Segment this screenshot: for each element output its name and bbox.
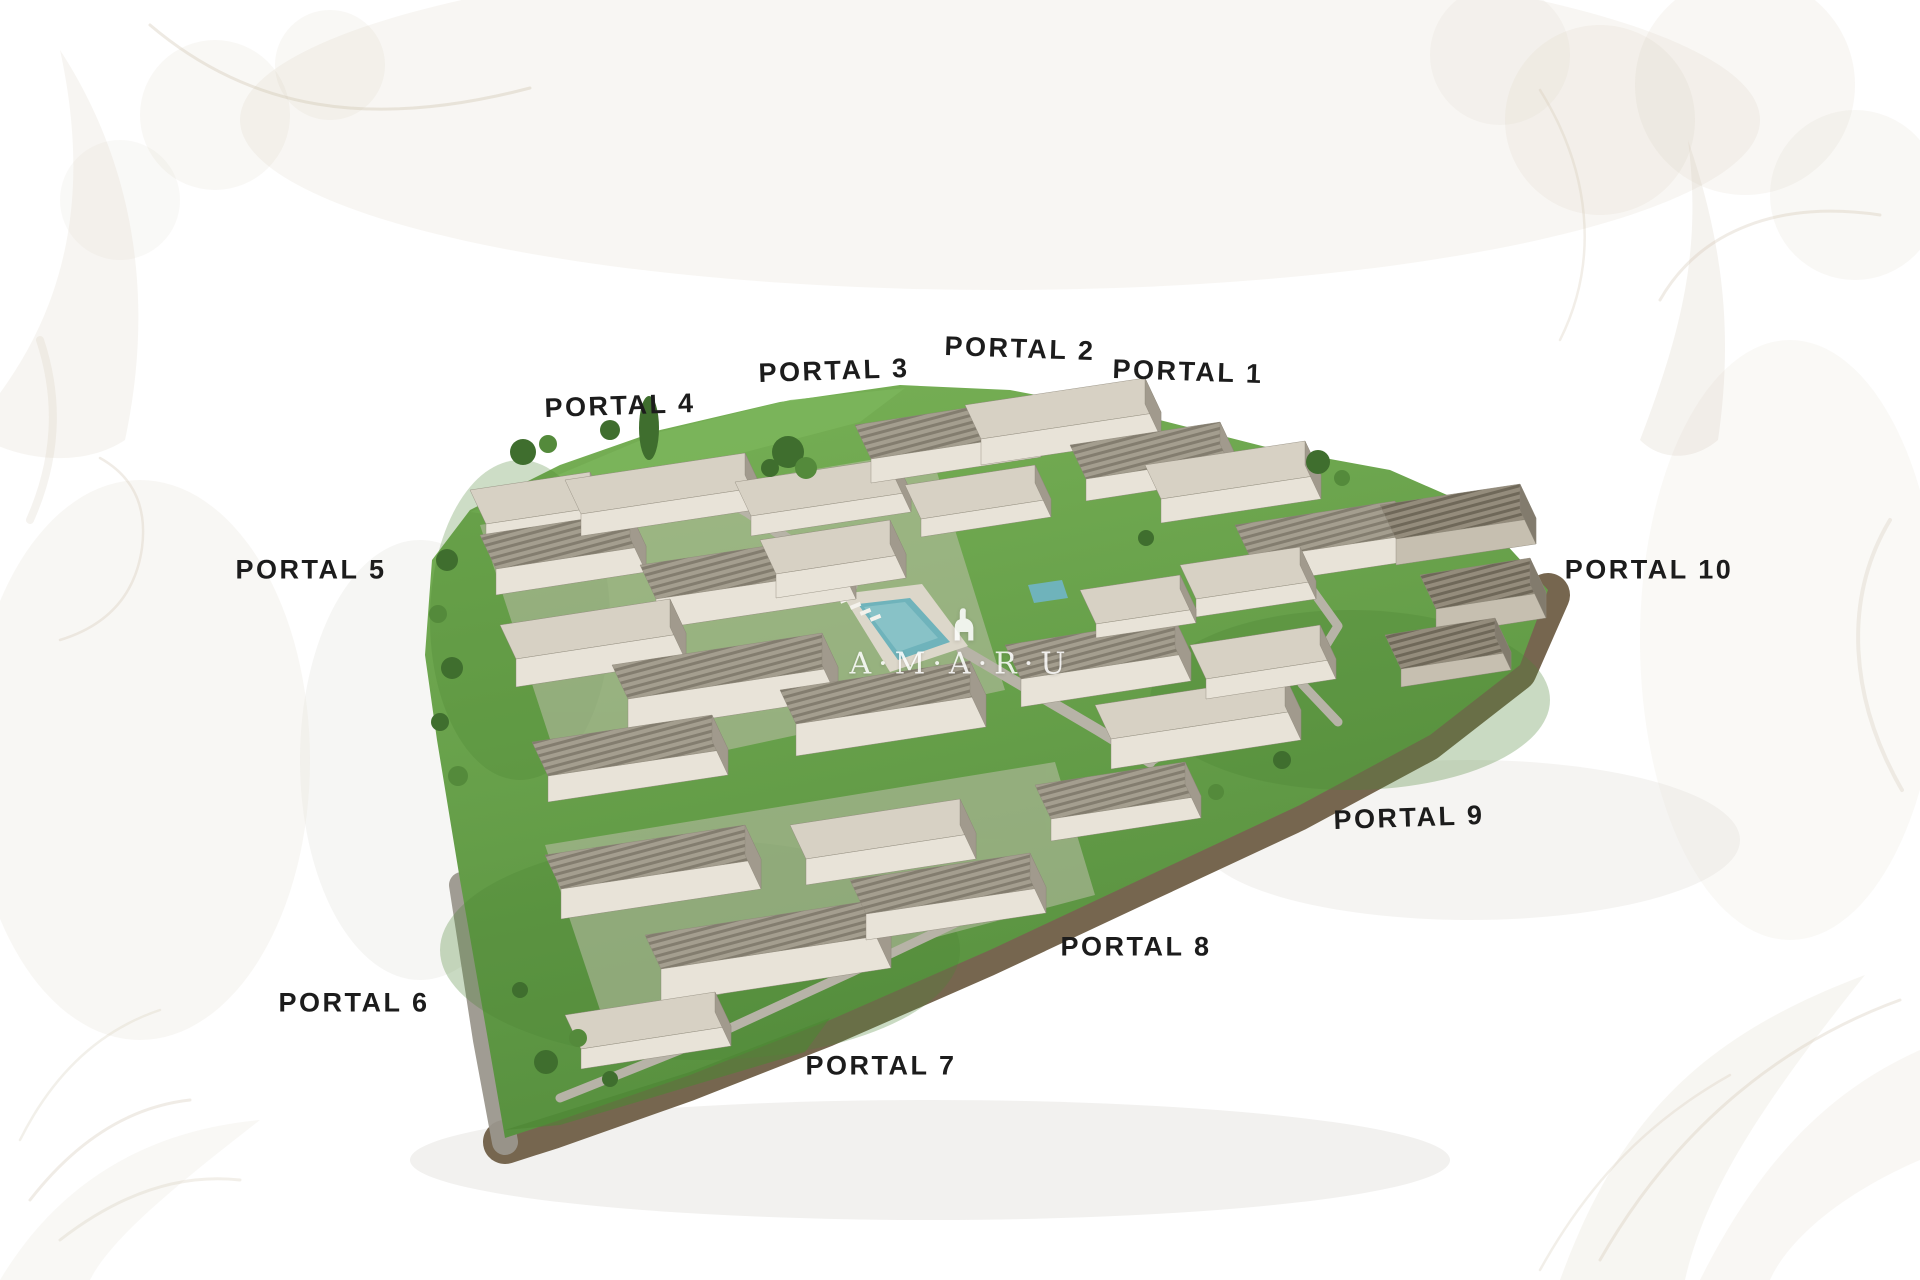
site-plan-render xyxy=(0,0,1920,1280)
portal-4-label: PORTAL 4 xyxy=(544,390,696,422)
page: { "watermark": { "letters": "A·M·A·R·U",… xyxy=(0,0,1920,1280)
portal-8-label: PORTAL 8 xyxy=(1060,934,1211,961)
portal-3-label: PORTAL 3 xyxy=(758,355,910,387)
portal-2-label: PORTAL 2 xyxy=(944,333,1096,365)
portal-10-label: PORTAL 10 xyxy=(1565,557,1734,584)
leaf-sketch-bottom-right xyxy=(1540,975,1920,1280)
portal-7-label: PORTAL 7 xyxy=(805,1053,956,1080)
portal-5-label: PORTAL 5 xyxy=(235,557,386,584)
portal-1-label: PORTAL 1 xyxy=(1112,356,1264,388)
portal-6-label: PORTAL 6 xyxy=(278,990,429,1017)
fern-sketch-bottom-left xyxy=(0,1010,260,1280)
portal-9-label: PORTAL 9 xyxy=(1333,802,1485,834)
